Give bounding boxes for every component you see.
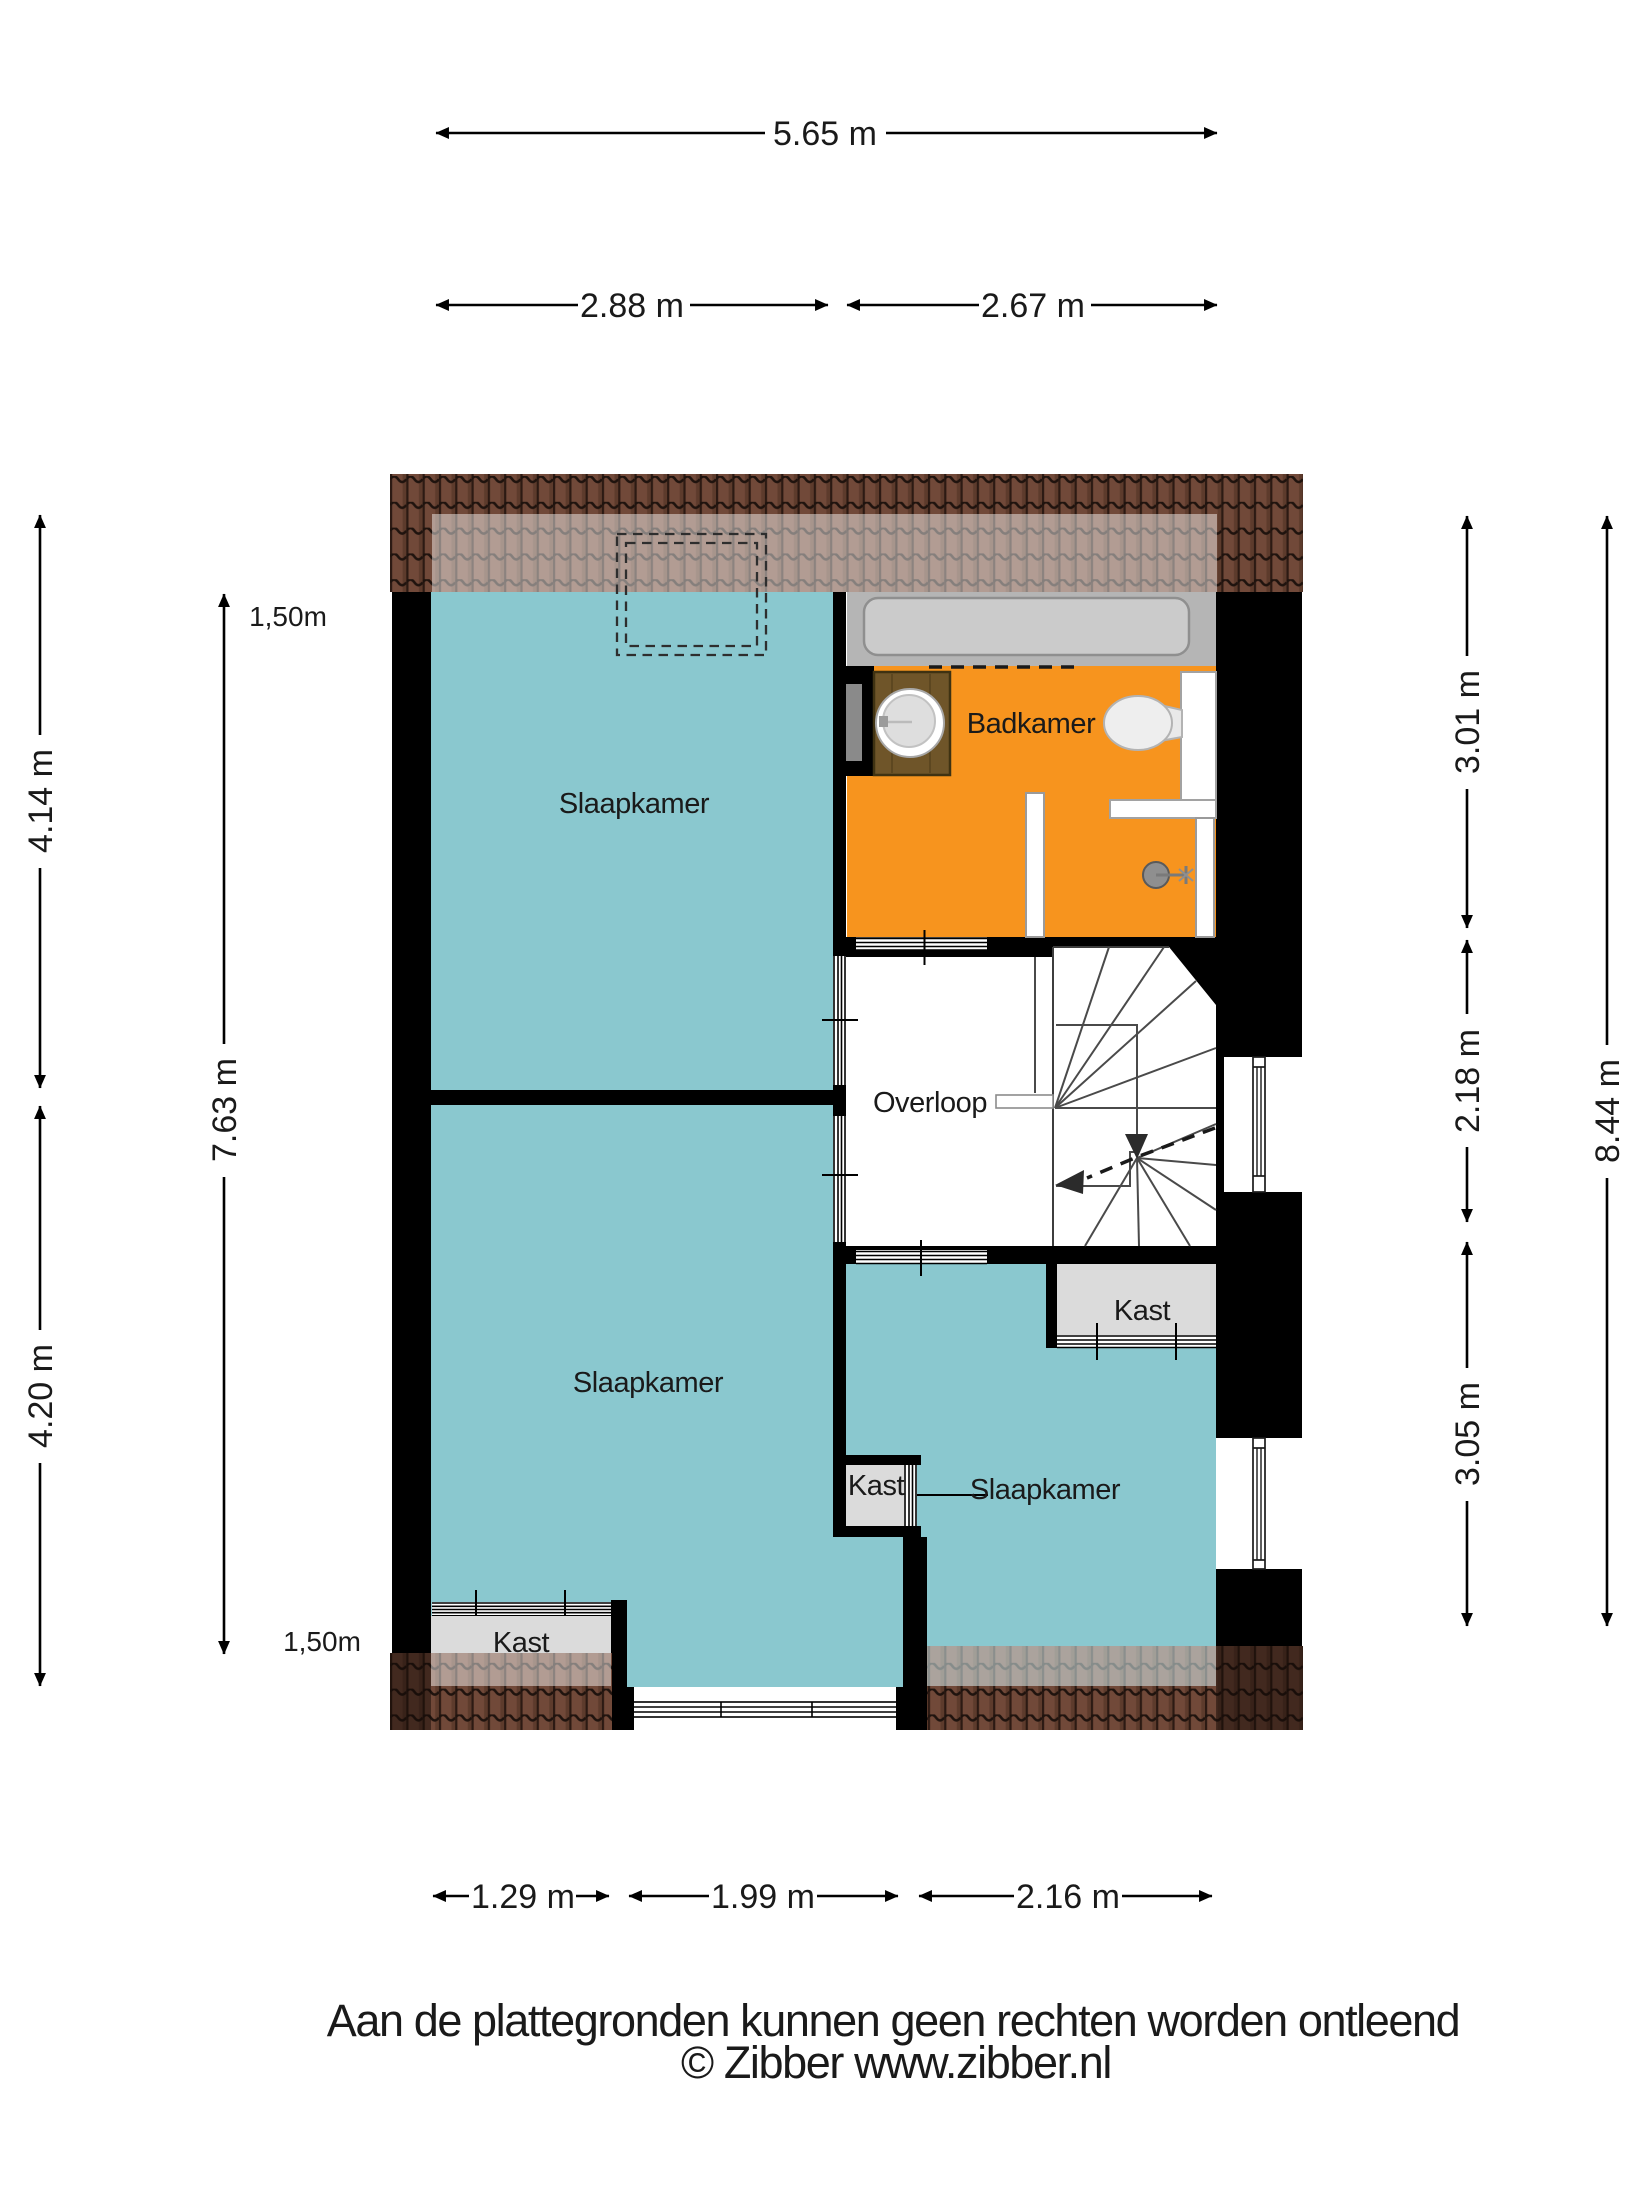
svg-text:3.01 m: 3.01 m — [1449, 670, 1487, 774]
svg-text:4.20 m: 4.20 m — [22, 1344, 60, 1448]
svg-text:© Zibber www.zibber.nl: © Zibber www.zibber.nl — [681, 2037, 1111, 2088]
svg-text:Slaapkamer: Slaapkamer — [970, 1474, 1121, 1506]
svg-text:2.88 m: 2.88 m — [580, 287, 684, 325]
svg-text:Kast: Kast — [1114, 1295, 1171, 1327]
svg-text:1.29 m: 1.29 m — [471, 1878, 575, 1916]
svg-text:Badkamer: Badkamer — [967, 708, 1096, 740]
svg-text:1.99 m: 1.99 m — [711, 1878, 815, 1916]
svg-text:5.65 m: 5.65 m — [773, 115, 877, 153]
svg-text:8.44 m: 8.44 m — [1589, 1059, 1627, 1163]
svg-text:1,50m: 1,50m — [249, 601, 327, 632]
svg-text:Overloop: Overloop — [873, 1087, 987, 1119]
svg-text:3.05 m: 3.05 m — [1449, 1382, 1487, 1486]
svg-text:Kast: Kast — [848, 1470, 905, 1502]
svg-text:2.18 m: 2.18 m — [1449, 1029, 1487, 1133]
svg-text:2.67 m: 2.67 m — [981, 287, 1085, 325]
svg-text:Slaapkamer: Slaapkamer — [559, 788, 710, 820]
svg-text:Kast: Kast — [493, 1627, 550, 1659]
svg-text:1,50m: 1,50m — [283, 1626, 361, 1657]
svg-text:4.14 m: 4.14 m — [22, 749, 60, 853]
svg-text:7.63 m: 7.63 m — [206, 1058, 244, 1162]
svg-text:2.16 m: 2.16 m — [1016, 1878, 1120, 1916]
svg-text:Slaapkamer: Slaapkamer — [573, 1367, 724, 1399]
